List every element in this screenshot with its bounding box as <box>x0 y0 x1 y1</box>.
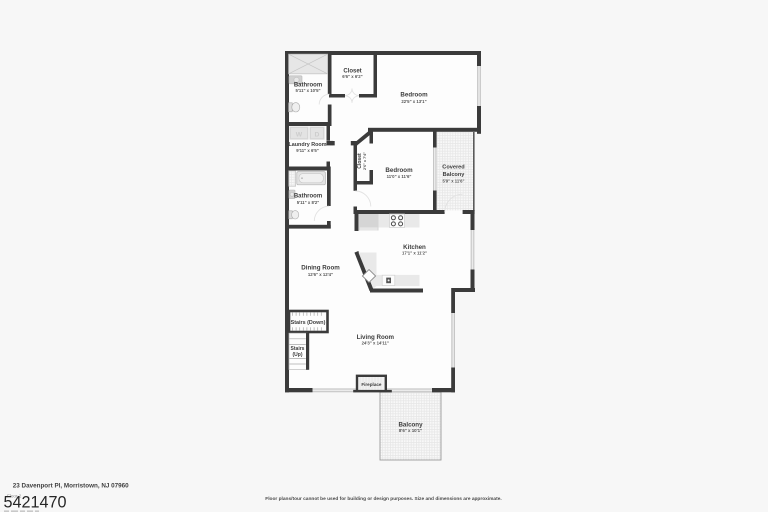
svg-text:Bathroom: Bathroom <box>294 193 322 199</box>
svg-text:24'3" x 14'11": 24'3" x 14'11" <box>362 340 389 345</box>
svg-text:Stairs (Down): Stairs (Down) <box>291 320 326 326</box>
svg-text:(Up): (Up) <box>293 352 303 358</box>
svg-text:5421470: 5421470 <box>4 494 67 512</box>
svg-text:D: D <box>315 131 320 138</box>
svg-text:5'11" x 10'5": 5'11" x 10'5" <box>296 88 321 93</box>
svg-text:Dining Room: Dining Room <box>301 264 340 271</box>
svg-text:22'5" x 13'1": 22'5" x 13'1" <box>401 99 426 104</box>
svg-text:Covered: Covered <box>442 165 465 171</box>
svg-text:Bedroom: Bedroom <box>400 91 428 98</box>
svg-text:11'0" x 11'6": 11'0" x 11'6" <box>387 174 412 179</box>
svg-text:17'1" x 11'2": 17'1" x 11'2" <box>402 251 427 256</box>
svg-text:2'6" x 7'4": 2'6" x 7'4" <box>363 152 367 170</box>
svg-text:Balcony: Balcony <box>443 172 466 178</box>
svg-text:8'6" x 10'1": 8'6" x 10'1" <box>399 428 422 433</box>
svg-text:6'6" x 6'2": 6'6" x 6'2" <box>342 74 362 79</box>
svg-text:5'9" x 11'6": 5'9" x 11'6" <box>442 178 464 183</box>
svg-text:Floor plans/tour cannot be use: Floor plans/tour cannot be used for buil… <box>265 496 501 502</box>
svg-text:W: W <box>296 131 303 138</box>
svg-text:12'6" x 12'4": 12'6" x 12'4" <box>308 272 333 277</box>
svg-text:5'11" x 8'2": 5'11" x 8'2" <box>297 200 320 205</box>
svg-text:23 Davenport Pl, Morristown, N: 23 Davenport Pl, Morristown, NJ 07960 <box>13 483 129 490</box>
svg-text:9'11" x 6'5": 9'11" x 6'5" <box>296 148 319 153</box>
svg-text:Fireplace: Fireplace <box>361 382 382 387</box>
